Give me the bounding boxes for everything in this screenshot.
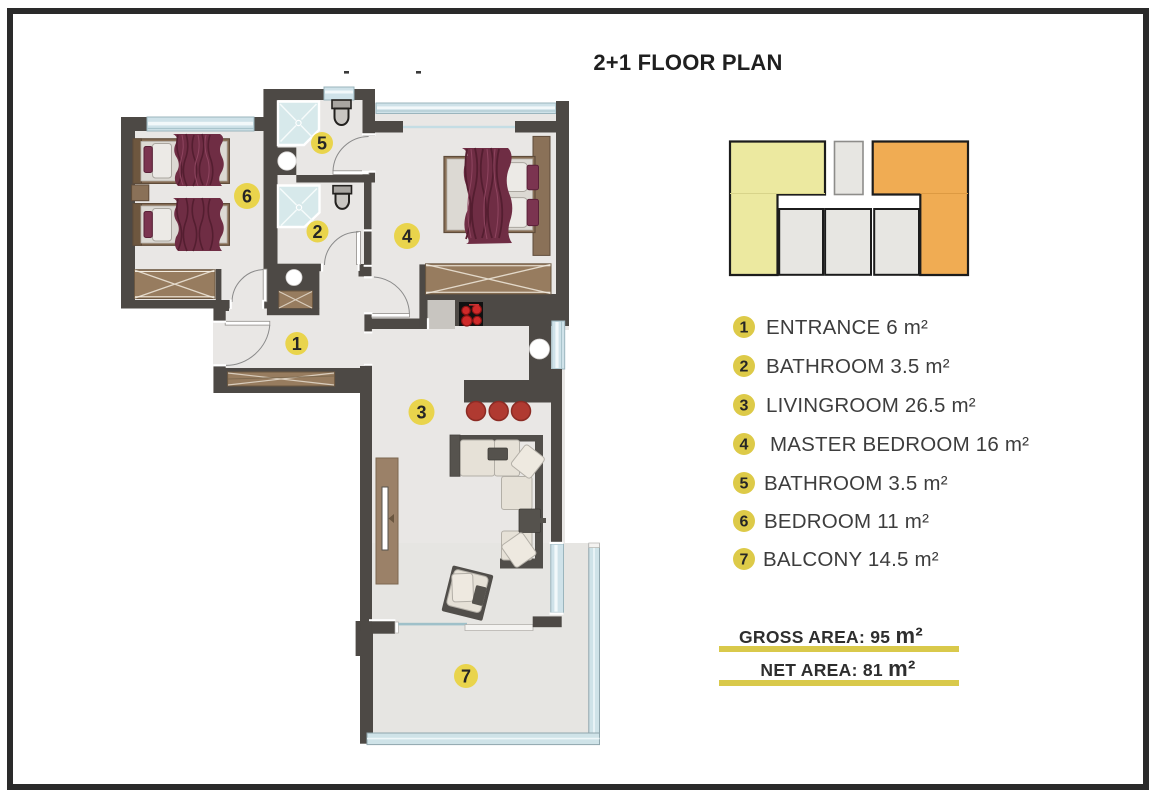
svg-text:1: 1	[740, 320, 749, 337]
svg-text:2: 2	[312, 222, 322, 242]
svg-text:7: 7	[461, 667, 471, 687]
svg-text:5: 5	[740, 476, 749, 493]
svg-text:5: 5	[317, 134, 327, 154]
svg-text:6: 6	[242, 187, 252, 207]
svg-text:6: 6	[740, 514, 749, 531]
svg-text:BATHROOM 3.5 m²: BATHROOM 3.5 m²	[766, 355, 950, 378]
svg-text:GROSS AREA: 95 m²: GROSS AREA: 95 m²	[739, 623, 923, 648]
svg-text:4: 4	[740, 437, 749, 454]
svg-text:2: 2	[740, 359, 749, 376]
svg-text:3: 3	[740, 398, 749, 415]
svg-text:NET AREA: 81 m²: NET AREA: 81 m²	[760, 656, 915, 681]
svg-text:1: 1	[292, 334, 302, 354]
svg-text:7: 7	[740, 552, 749, 569]
svg-text:BALCONY 14.5 m²: BALCONY 14.5 m²	[763, 548, 939, 571]
svg-text:BATHROOM 3.5 m²: BATHROOM 3.5 m²	[764, 472, 948, 495]
svg-text:LIVINGROOM 26.5 m²: LIVINGROOM 26.5 m²	[766, 394, 976, 417]
svg-text:MASTER BEDROOM 16 m²: MASTER BEDROOM 16 m²	[770, 433, 1029, 456]
svg-text:2+1 FLOOR PLAN: 2+1 FLOOR PLAN	[593, 50, 782, 75]
svg-text:4: 4	[402, 227, 412, 247]
svg-text:BEDROOM 11 m²: BEDROOM 11 m²	[764, 510, 929, 533]
svg-text:3: 3	[416, 403, 426, 423]
svg-text:ENTRANCE 6 m²: ENTRANCE 6 m²	[766, 316, 928, 339]
